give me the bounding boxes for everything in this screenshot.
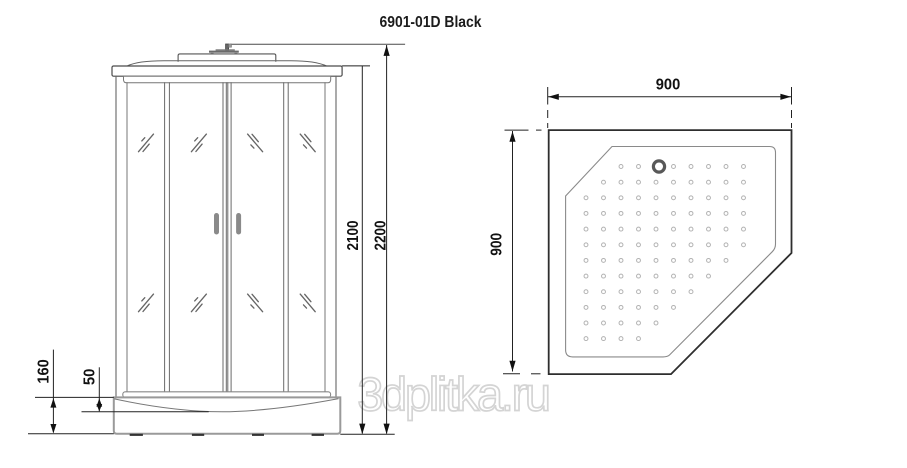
- svg-text:2100: 2100: [345, 221, 362, 251]
- svg-text:900: 900: [489, 233, 506, 256]
- svg-text:6901-01D Black: 6901-01D Black: [380, 14, 482, 31]
- svg-text:3dplitka.ru: 3dplitka.ru: [357, 368, 549, 421]
- svg-text:160: 160: [36, 359, 53, 384]
- svg-text:50: 50: [81, 369, 98, 386]
- svg-text:900: 900: [656, 76, 681, 93]
- svg-text:2200: 2200: [373, 221, 390, 251]
